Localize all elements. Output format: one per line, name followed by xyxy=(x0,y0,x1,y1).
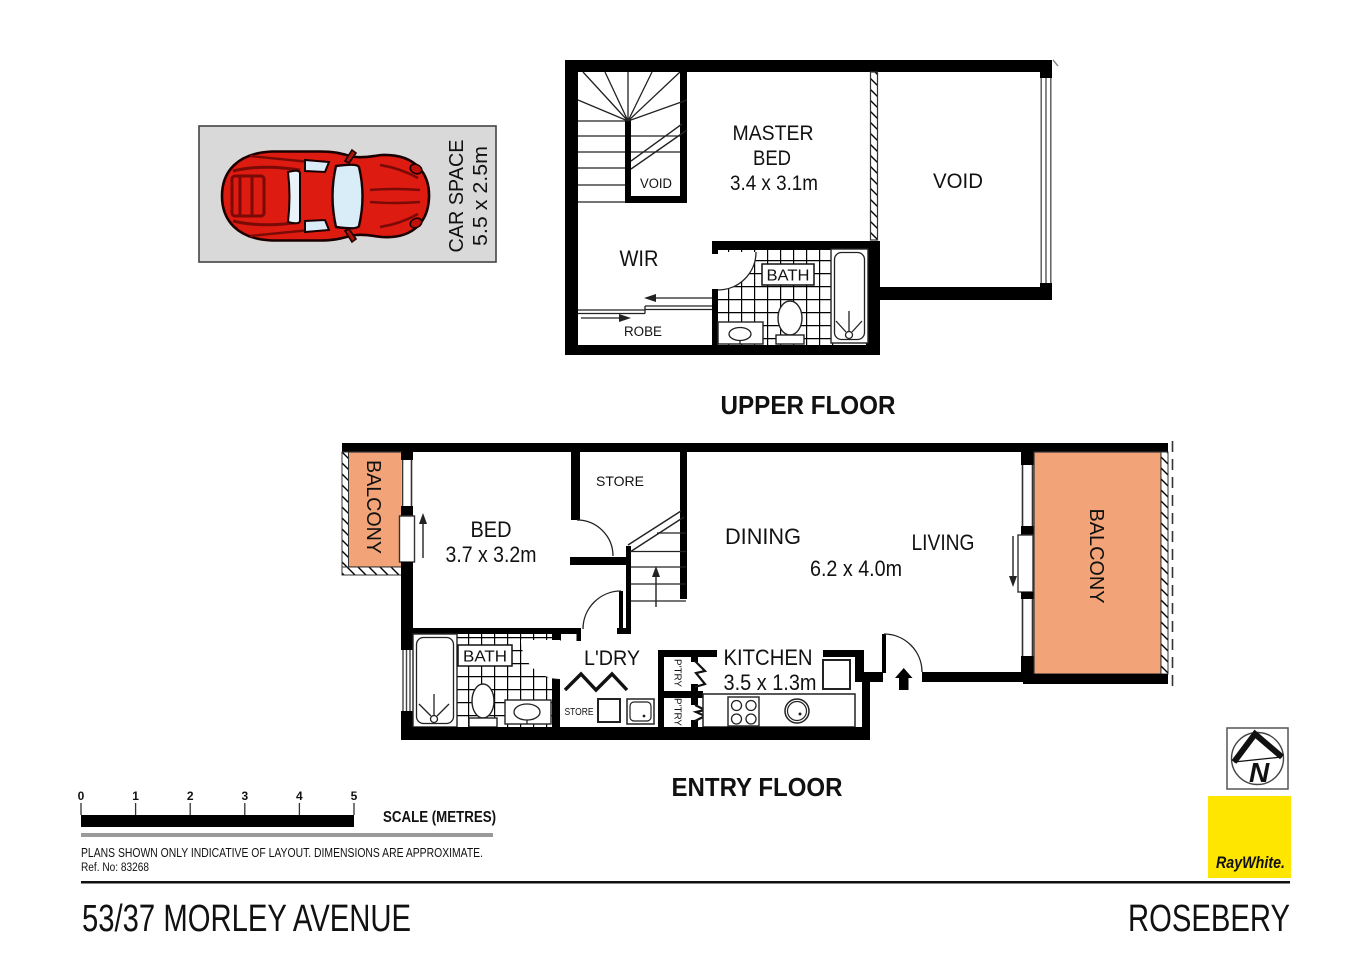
svg-text:P'TRY: P'TRY xyxy=(672,659,684,687)
svg-text:N: N xyxy=(1249,757,1270,788)
svg-text:UPPER FLOOR: UPPER FLOOR xyxy=(721,390,896,420)
svg-text:BED: BED xyxy=(471,517,512,542)
svg-text:3.5 x 1.3m: 3.5 x 1.3m xyxy=(724,670,817,695)
svg-text:WIR: WIR xyxy=(620,246,659,271)
svg-text:PLANS SHOWN ONLY INDICATIVE OF: PLANS SHOWN ONLY INDICATIVE OF LAYOUT. D… xyxy=(81,846,483,860)
svg-text:1: 1 xyxy=(132,789,139,803)
svg-text:MASTER: MASTER xyxy=(733,122,814,145)
svg-text:ENTRY FLOOR: ENTRY FLOOR xyxy=(672,772,843,802)
svg-text:5: 5 xyxy=(351,789,358,803)
svg-text:VOID: VOID xyxy=(640,176,672,191)
svg-text:BATH: BATH xyxy=(463,649,507,666)
svg-text:53/37 MORLEY AVENUE: 53/37 MORLEY AVENUE xyxy=(82,898,411,940)
svg-text:ROBE: ROBE xyxy=(624,324,662,339)
svg-text:ROSEBERY: ROSEBERY xyxy=(1128,898,1290,940)
svg-text:BALCONY: BALCONY xyxy=(1085,509,1107,604)
svg-text:DINING: DINING xyxy=(725,524,801,549)
svg-text:4: 4 xyxy=(296,789,303,803)
svg-text:SCALE (METRES): SCALE (METRES) xyxy=(383,809,496,826)
svg-text:Ref. No: 83268: Ref. No: 83268 xyxy=(81,862,149,874)
svg-text:STORE: STORE xyxy=(565,706,594,718)
svg-text:KITCHEN: KITCHEN xyxy=(724,645,813,670)
svg-text:LIVING: LIVING xyxy=(912,530,975,555)
svg-text:6.2 x 4.0m: 6.2 x 4.0m xyxy=(810,556,902,581)
svg-text:BATH: BATH xyxy=(767,268,810,285)
svg-text:STORE: STORE xyxy=(596,473,644,489)
svg-text:CAR SPACE: CAR SPACE xyxy=(446,140,468,253)
svg-text:RayWhite.: RayWhite. xyxy=(1216,853,1285,872)
svg-text:2: 2 xyxy=(187,789,194,803)
svg-text:0: 0 xyxy=(78,789,85,803)
svg-text:L'DRY: L'DRY xyxy=(584,647,640,670)
svg-text:VOID: VOID xyxy=(933,170,983,193)
svg-text:3.7 x 3.2m: 3.7 x 3.2m xyxy=(446,542,537,567)
svg-text:BED: BED xyxy=(753,147,791,170)
svg-text:3.4 x 3.1m: 3.4 x 3.1m xyxy=(730,172,818,195)
svg-text:3: 3 xyxy=(241,789,248,803)
svg-text:P'TRY: P'TRY xyxy=(672,698,684,726)
svg-text:BALCONY: BALCONY xyxy=(362,460,384,554)
svg-text:5.5 x 2.5m: 5.5 x 2.5m xyxy=(470,146,492,246)
